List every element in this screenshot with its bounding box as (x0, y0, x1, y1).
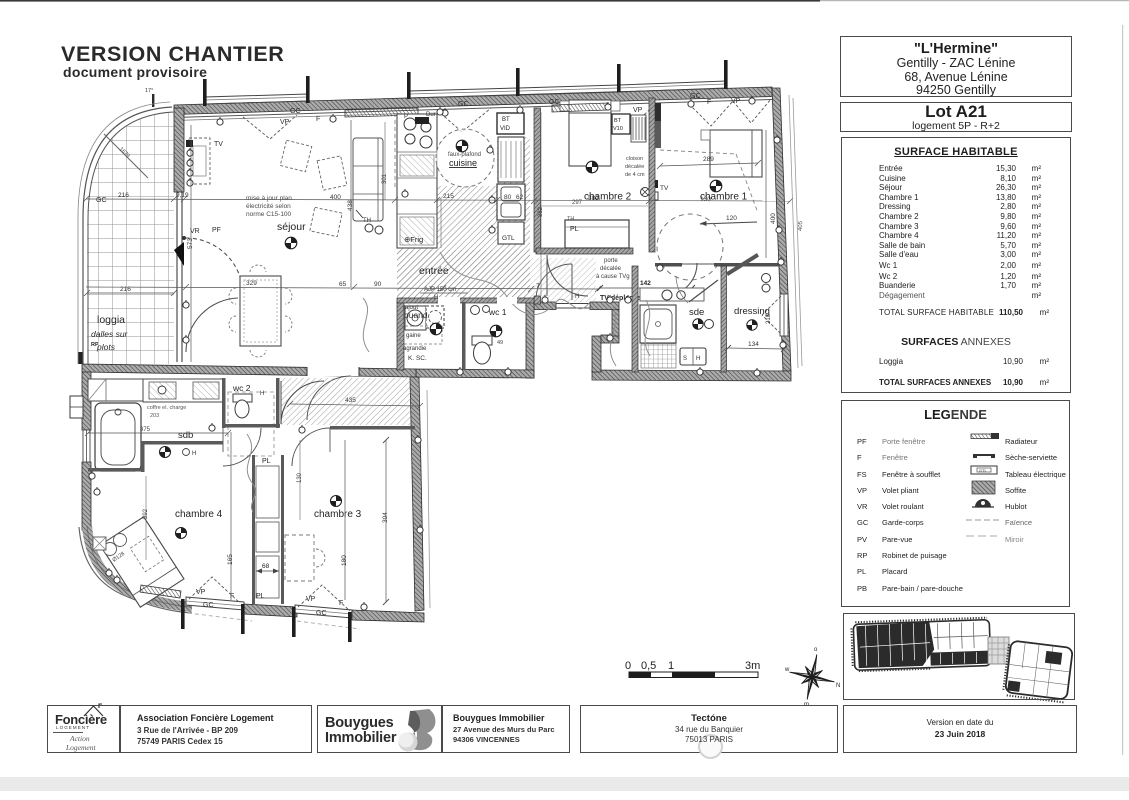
svg-text:218: 218 (766, 313, 772, 324)
svg-text:PL: PL (262, 458, 271, 465)
svg-text:buand.: buand. (404, 310, 430, 320)
svg-text:17°: 17° (145, 88, 153, 94)
svg-text:à cause TVg: à cause TVg (596, 274, 630, 280)
svg-text:203: 203 (150, 413, 159, 419)
svg-text:65: 65 (339, 281, 347, 288)
svg-text:68: 68 (262, 563, 270, 570)
svg-text:VP: VP (306, 596, 316, 603)
svg-text:agrandie: agrandie (403, 346, 427, 352)
svg-text:GC: GC (96, 197, 107, 204)
svg-text:⊕Frig: ⊕Frig (404, 235, 423, 244)
svg-text:180: 180 (341, 555, 348, 566)
svg-text:GTL: GTL (979, 468, 988, 473)
svg-text:130: 130 (297, 472, 303, 483)
svg-text:chambre 3: chambre 3 (314, 509, 362, 520)
svg-text:dalles sur: dalles sur (91, 329, 129, 339)
svg-text:H: H (434, 295, 438, 301)
svg-text:405: 405 (798, 220, 804, 231)
svg-text:V10: V10 (613, 126, 623, 132)
svg-text:90: 90 (374, 281, 382, 288)
svg-text:F: F (316, 116, 320, 123)
svg-text:GC: GC (316, 610, 327, 617)
svg-text:TH: TH (363, 218, 371, 224)
svg-text:gaine: gaine (406, 333, 421, 339)
svg-text:VR: VR (190, 228, 200, 235)
svg-text:3m: 3m (745, 660, 760, 672)
svg-text:215: 215 (443, 193, 454, 200)
svg-text:573: 573 (187, 238, 194, 249)
svg-text:norme C15-100: norme C15-100 (246, 211, 292, 218)
svg-text:K. SC.: K. SC. (408, 355, 427, 362)
svg-text:entrée: entrée (419, 265, 449, 277)
svg-text:GC: GC (290, 108, 301, 115)
svg-text:130: 130 (700, 196, 711, 203)
svg-text:592: 592 (143, 508, 149, 519)
svg-text:435: 435 (345, 397, 356, 404)
svg-text:coffre el. charge: coffre el. charge (147, 405, 186, 411)
svg-text:P: P (404, 114, 408, 120)
svg-text:wc 2: wc 2 (232, 383, 251, 393)
svg-text:BT: BT (614, 118, 622, 124)
svg-text:216: 216 (118, 192, 129, 199)
svg-text:H: H (192, 451, 196, 457)
svg-text:120: 120 (726, 215, 737, 222)
svg-text:165: 165 (227, 554, 234, 565)
svg-text:438: 438 (347, 200, 354, 211)
svg-text:cloison: cloison (626, 156, 643, 162)
svg-text:w: w (784, 667, 790, 673)
svg-text:GC: GC (458, 101, 469, 108)
svg-text:400: 400 (770, 213, 777, 224)
svg-text:wc 1: wc 1 (488, 307, 507, 317)
svg-text:49: 49 (497, 340, 503, 346)
svg-text:loggia: loggia (97, 314, 125, 326)
svg-text:chambre 4: chambre 4 (175, 509, 223, 520)
svg-text:AJP 150 cm: AJP 150 cm (424, 287, 456, 293)
svg-text:GTL: GTL (502, 235, 515, 242)
svg-text:9,19: 9,19 (176, 192, 189, 199)
svg-text:62: 62 (516, 194, 524, 201)
svg-text:porte: porte (604, 258, 618, 264)
svg-text:Dur: Dur (426, 112, 436, 118)
svg-text:0: 0 (625, 660, 631, 672)
svg-text:304: 304 (382, 512, 389, 523)
svg-text:décalée: décalée (625, 164, 644, 170)
svg-text:H: H (260, 391, 264, 397)
svg-text:séjour: séjour (277, 221, 306, 233)
svg-text:VP: VP (731, 98, 741, 105)
svg-text:S: S (683, 356, 687, 362)
svg-text:TV: TV (660, 185, 669, 192)
svg-text:382: 382 (588, 195, 599, 202)
svg-text:TV: TV (214, 141, 223, 148)
svg-text:sdb: sdb (178, 430, 193, 441)
svg-text:plots: plots (96, 342, 116, 352)
svg-text:H: H (696, 356, 700, 362)
svg-text:7: 7 (536, 283, 540, 290)
svg-text:de 4 cm: de 4 cm (625, 172, 645, 178)
svg-text:GC: GC (203, 602, 214, 609)
svg-text:BT: BT (502, 117, 510, 123)
svg-text:mise à jour plan: mise à jour plan (246, 195, 292, 202)
svg-text:400: 400 (330, 194, 341, 201)
svg-text:289: 289 (703, 156, 714, 163)
svg-text:cuisine: cuisine (449, 158, 477, 168)
svg-text:134: 134 (748, 341, 759, 348)
svg-text:VP: VP (280, 119, 290, 126)
svg-text:électricité selon: électricité selon (246, 203, 291, 210)
svg-text:PL: PL (570, 226, 579, 233)
svg-text:329: 329 (246, 280, 257, 287)
svg-text:GC: GC (690, 93, 701, 100)
svg-text:301: 301 (382, 173, 388, 184)
svg-text:80: 80 (504, 194, 512, 201)
svg-text:0,5: 0,5 (641, 660, 656, 672)
svg-text:décalée: décalée (600, 266, 622, 272)
svg-text:sde: sde (689, 307, 704, 318)
svg-text:382: 382 (538, 206, 544, 217)
svg-text:VP: VP (196, 589, 206, 596)
svg-text:o: o (814, 647, 818, 653)
svg-text:dressing: dressing (734, 306, 770, 317)
svg-text:H: H (575, 294, 579, 300)
svg-text:297: 297 (572, 200, 583, 206)
svg-text:F: F (707, 99, 711, 106)
svg-text:PF: PF (212, 227, 221, 234)
svg-text:142: 142 (640, 280, 651, 287)
svg-text:PL: PL (256, 593, 265, 600)
svg-text:N: N (836, 683, 840, 689)
svg-text:VID: VID (500, 126, 511, 132)
svg-text:1: 1 (668, 660, 674, 672)
svg-text:375: 375 (140, 427, 151, 433)
svg-text:VP: VP (633, 107, 643, 114)
